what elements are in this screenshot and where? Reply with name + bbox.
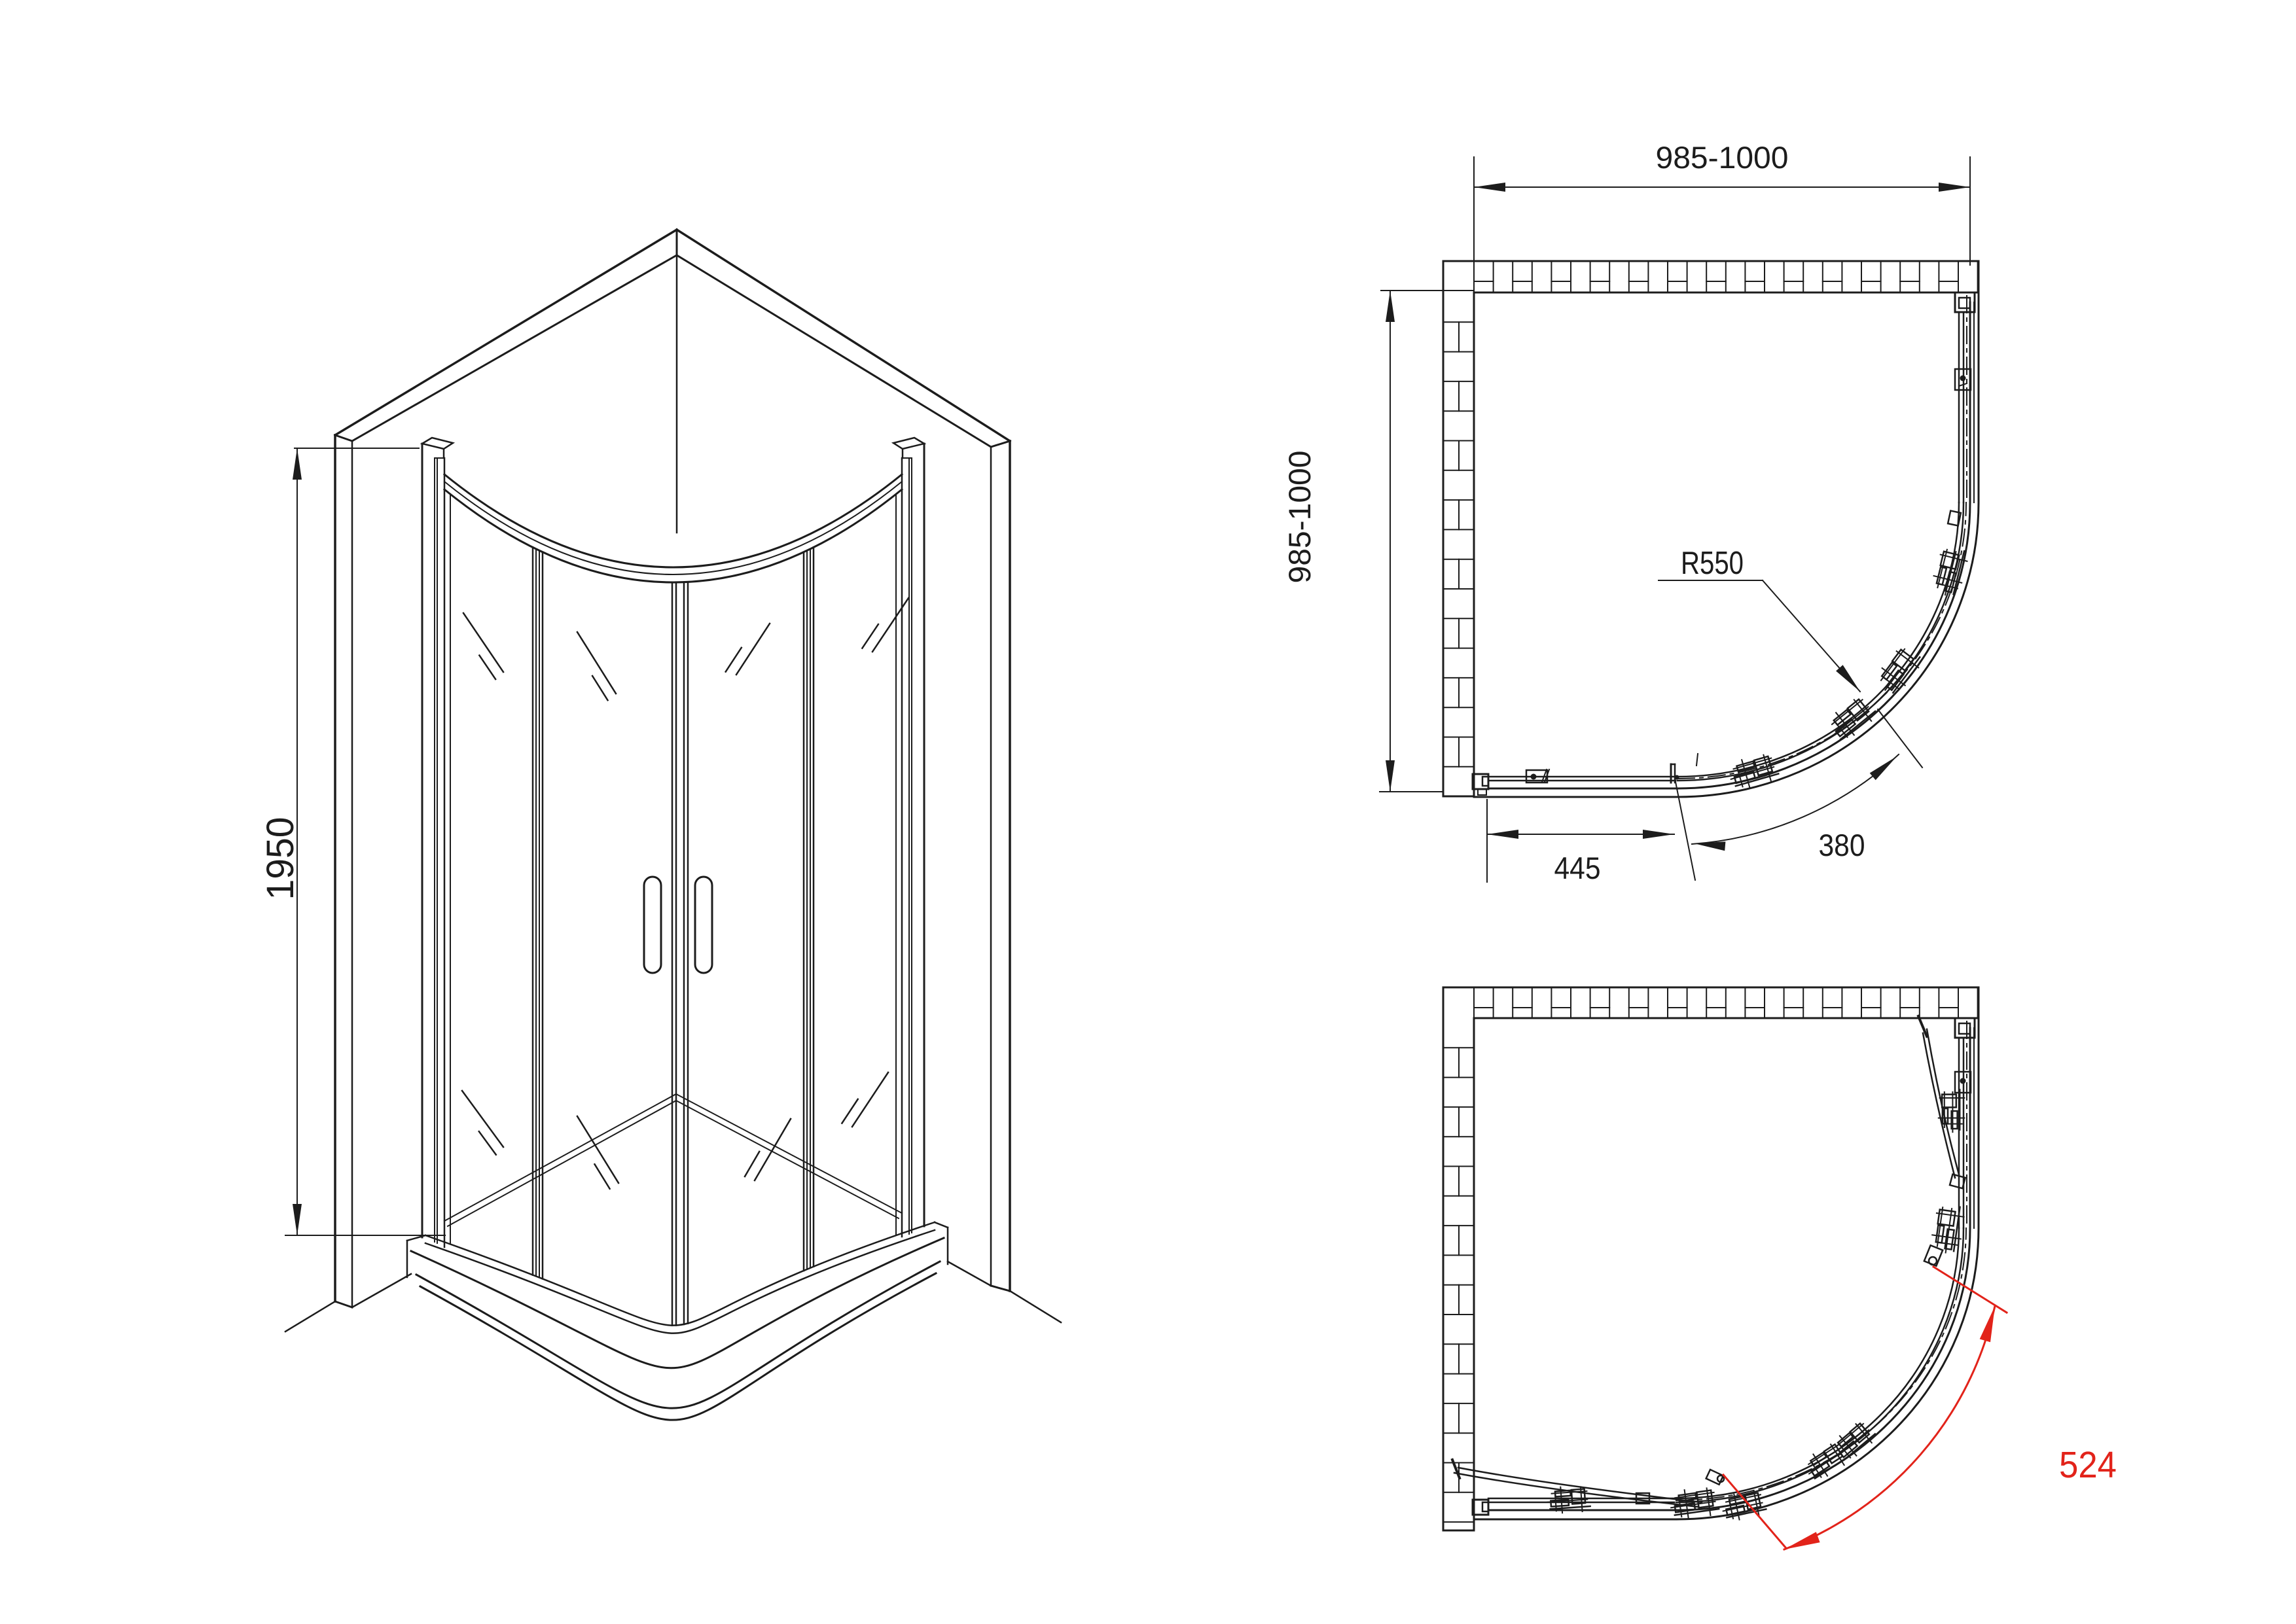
svg-text:985-1000: 985-1000 xyxy=(1282,451,1317,584)
svg-text:985-1000: 985-1000 xyxy=(1656,140,1789,175)
svg-text:524: 524 xyxy=(2059,1444,2117,1486)
svg-text:1950: 1950 xyxy=(259,817,302,900)
svg-text:445: 445 xyxy=(1554,851,1601,885)
svg-text:R550: R550 xyxy=(1681,546,1744,581)
svg-text:380: 380 xyxy=(1819,828,1865,862)
